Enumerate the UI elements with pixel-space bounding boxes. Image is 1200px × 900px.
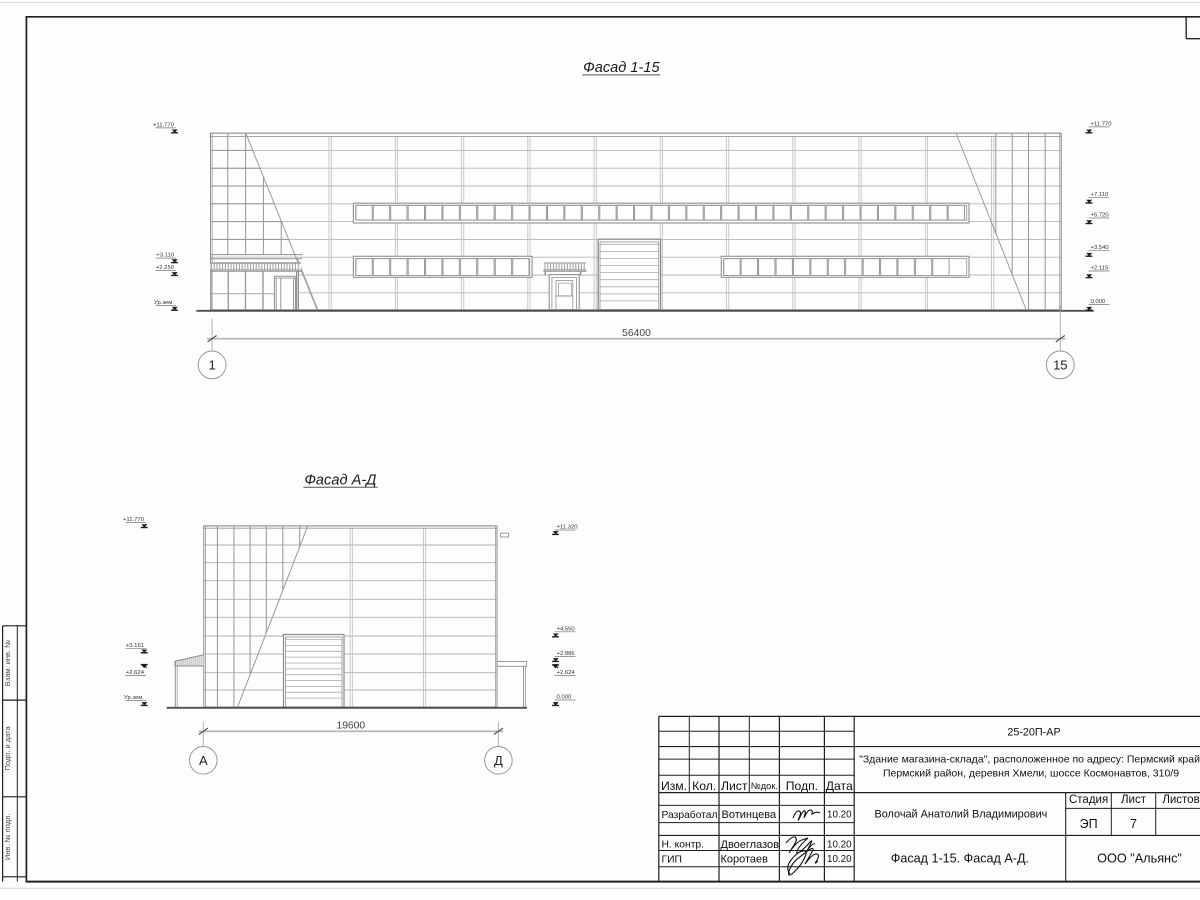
svg-text:7: 7 — [1130, 817, 1137, 831]
svg-text:Подп. и дата: Подп. и дата — [3, 725, 12, 770]
svg-text:Фасад А-Д: Фасад А-Д — [304, 472, 376, 488]
svg-text:Фасад 1-15. Фасад А-Д.: Фасад 1-15. Фасад А-Д. — [891, 852, 1029, 866]
svg-text:Вотинцева: Вотинцева — [722, 809, 777, 821]
svg-text:+5.720: +5.720 — [1091, 213, 1110, 219]
svg-text:Фасад 1-15: Фасад 1-15 — [583, 60, 660, 76]
svg-text:№док.: №док. — [751, 781, 778, 791]
svg-text:Пермский район, деревня Хмели,: Пермский район, деревня Хмели, шоссе Кос… — [883, 768, 1179, 780]
svg-text:19600: 19600 — [336, 721, 365, 732]
svg-text:+2.115: +2.115 — [1091, 266, 1109, 272]
svg-text:+11.770: +11.770 — [123, 517, 145, 523]
svg-text:+11.770: +11.770 — [153, 122, 175, 128]
svg-text:Взам. инв. №: Взам. инв. № — [3, 640, 12, 686]
svg-text:Дата: Дата — [826, 779, 853, 793]
svg-text:56400: 56400 — [622, 328, 651, 339]
svg-text:+11.320: +11.320 — [557, 525, 579, 531]
svg-text:10.20: 10.20 — [827, 839, 852, 850]
svg-text:+2.886: +2.886 — [557, 651, 576, 657]
svg-text:Волочай Анатолий Владимирович: Волочай Анатолий Владимирович — [874, 808, 1047, 820]
svg-text:Подп.: Подп. — [786, 779, 818, 793]
svg-text:+4.550: +4.550 — [557, 626, 576, 632]
svg-text:Ур.зем.: Ур.зем. — [154, 300, 174, 306]
svg-text:ЭП: ЭП — [1080, 817, 1098, 831]
svg-text:+2.250: +2.250 — [156, 265, 175, 271]
svg-text:"Здание магазина-склада", расп: "Здание магазина-склада", расположенное … — [859, 754, 1200, 766]
svg-text:Стадия: Стадия — [1069, 794, 1108, 806]
svg-text:А: А — [199, 753, 208, 768]
svg-text:ГИП: ГИП — [662, 854, 682, 865]
svg-text:+7.110: +7.110 — [1091, 192, 1109, 198]
svg-text:Н. контр.: Н. контр. — [662, 840, 705, 851]
svg-text:Д: Д — [494, 753, 503, 768]
svg-text:Двоеглазов: Двоеглазов — [721, 839, 780, 851]
svg-text:+11.770: +11.770 — [1091, 121, 1113, 127]
svg-text:25-20П-АР: 25-20П-АР — [1007, 726, 1060, 738]
svg-text:Кол.: Кол. — [692, 779, 716, 793]
svg-text:Ур.зем.: Ур.зем. — [124, 695, 144, 701]
svg-text:Лист: Лист — [1121, 794, 1147, 806]
svg-text:+3.540: +3.540 — [1091, 245, 1110, 251]
svg-text:10.20: 10.20 — [827, 854, 852, 865]
svg-text:1: 1 — [208, 358, 215, 373]
svg-text:15: 15 — [1053, 358, 1067, 373]
svg-text:10.20: 10.20 — [827, 810, 852, 821]
svg-text:+3.161: +3.161 — [126, 643, 144, 649]
svg-text:0.000: 0.000 — [1091, 299, 1106, 305]
svg-text:Изм.: Изм. — [661, 779, 687, 793]
svg-text:Листов: Листов — [1162, 794, 1199, 806]
svg-text:+3.110: +3.110 — [156, 253, 174, 259]
svg-text:+2.624: +2.624 — [126, 670, 145, 676]
svg-text:Инв. № подл.: Инв. № подл. — [3, 813, 12, 860]
svg-text:ООО "Альянс": ООО "Альянс" — [1097, 852, 1182, 866]
svg-text:+2.624: +2.624 — [557, 670, 576, 676]
svg-text:Коротаев: Коротаев — [721, 854, 769, 866]
svg-text:Разработал: Разработал — [662, 809, 718, 821]
svg-text:0.000: 0.000 — [557, 695, 572, 701]
svg-text:Лист: Лист — [721, 779, 748, 793]
